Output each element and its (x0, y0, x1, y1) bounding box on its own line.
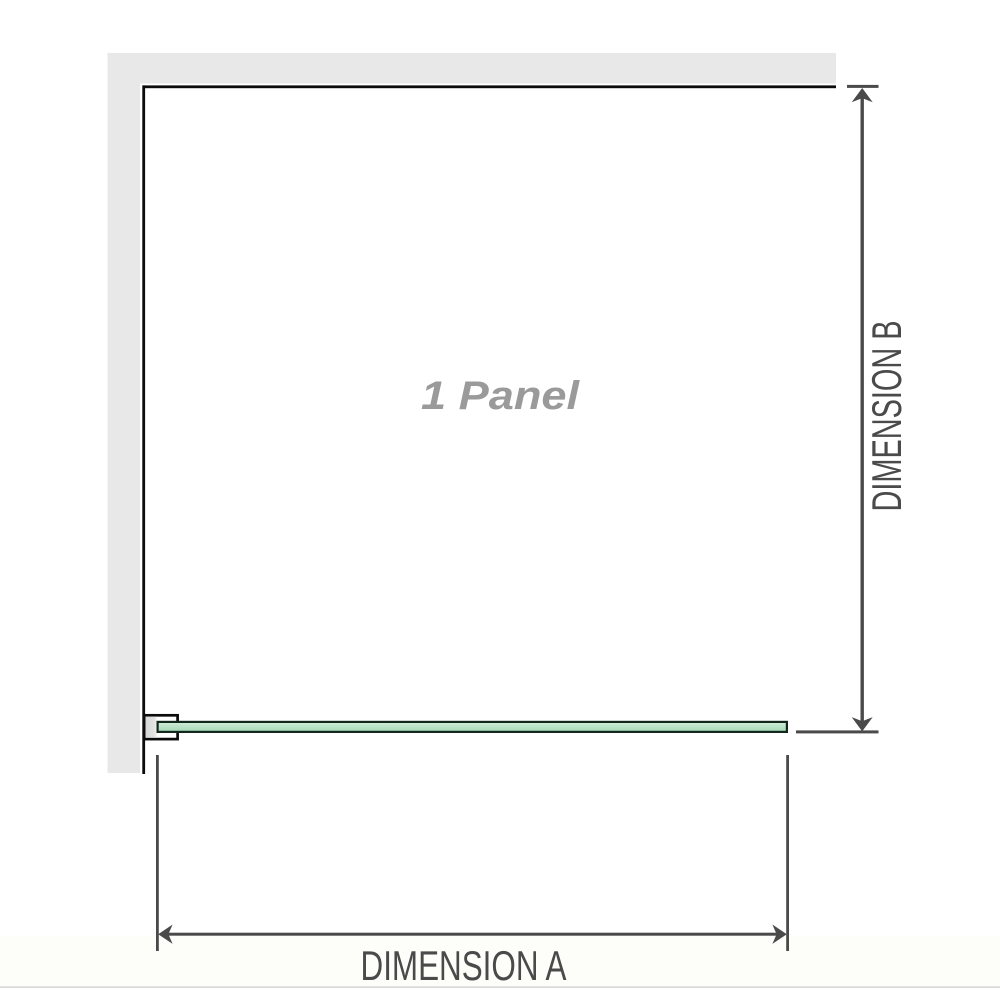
svg-text:DIMENSION B: DIMENSION B (863, 321, 910, 512)
svg-text:DIMENSION A: DIMENSION A (361, 942, 567, 989)
svg-text:1 Panel: 1 Panel (421, 374, 580, 418)
